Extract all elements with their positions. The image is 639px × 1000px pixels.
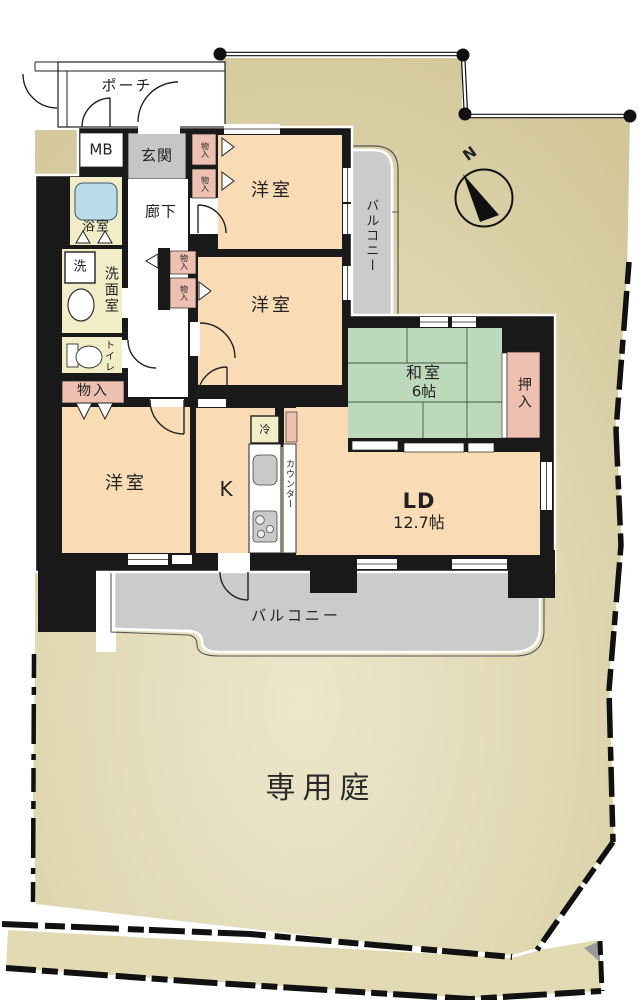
label-japanese-room: 和室 bbox=[406, 364, 442, 382]
room-ld-ext bbox=[296, 407, 348, 445]
sliding-door-closet bbox=[502, 353, 507, 438]
burner bbox=[266, 525, 273, 532]
bathtub bbox=[75, 183, 117, 220]
floorplan-canvas: ポーチ MB 玄関 廊下 浴室 洗 洗面室 トイレ 物入 物入 物入 物入 物入… bbox=[0, 0, 639, 1000]
toilet-bowl bbox=[76, 346, 102, 368]
label-washroom: 洗面室 bbox=[102, 266, 118, 314]
label-hallway: 廊下 bbox=[145, 204, 177, 221]
label-japanese-room-size: 6帖 bbox=[412, 384, 437, 401]
hall-wall-stub bbox=[158, 248, 170, 310]
doorway-western-1 bbox=[190, 198, 218, 234]
label-closet: 押入 bbox=[515, 377, 531, 411]
label-kitchen: K bbox=[219, 478, 232, 500]
label-living-dining: LD bbox=[403, 490, 436, 514]
label-storage-b1: 物入 bbox=[179, 254, 188, 270]
kitchen-sink bbox=[253, 455, 277, 485]
label-bathroom: 浴室 bbox=[82, 221, 110, 236]
label-western-3: 洋室 bbox=[105, 474, 147, 494]
room-western-2 bbox=[198, 257, 342, 385]
label-private-garden: 専用庭 bbox=[266, 772, 377, 806]
label-entrance: 玄関 bbox=[141, 148, 173, 165]
label-storage-hall: 物入 bbox=[77, 384, 109, 400]
label-western-1: 洋室 bbox=[251, 181, 293, 201]
washbasin bbox=[68, 289, 94, 321]
label-western-2: 洋室 bbox=[251, 296, 293, 316]
label-meter-box: MB bbox=[89, 142, 112, 159]
burner bbox=[257, 530, 264, 537]
label-storage-a2: 物入 bbox=[200, 176, 209, 192]
label-balcony-bottom: バルコニー bbox=[251, 608, 341, 625]
label-storage-b2: 物入 bbox=[179, 285, 188, 301]
burner bbox=[256, 516, 265, 525]
label-washer: 洗 bbox=[73, 261, 86, 276]
label-balcony-right: バルコニー bbox=[363, 199, 378, 274]
label-porch: ポーチ bbox=[101, 78, 152, 95]
label-living-dining-size: 12.7帖 bbox=[393, 514, 445, 532]
porch-exterior-door bbox=[23, 74, 57, 108]
stove bbox=[253, 511, 277, 542]
label-storage-a1: 物入 bbox=[200, 142, 209, 158]
label-toilet: トイレ bbox=[102, 340, 113, 373]
label-counter: カウンター bbox=[284, 459, 294, 509]
kitchen-duct bbox=[286, 412, 297, 442]
label-fridge: 冷 bbox=[260, 424, 271, 436]
